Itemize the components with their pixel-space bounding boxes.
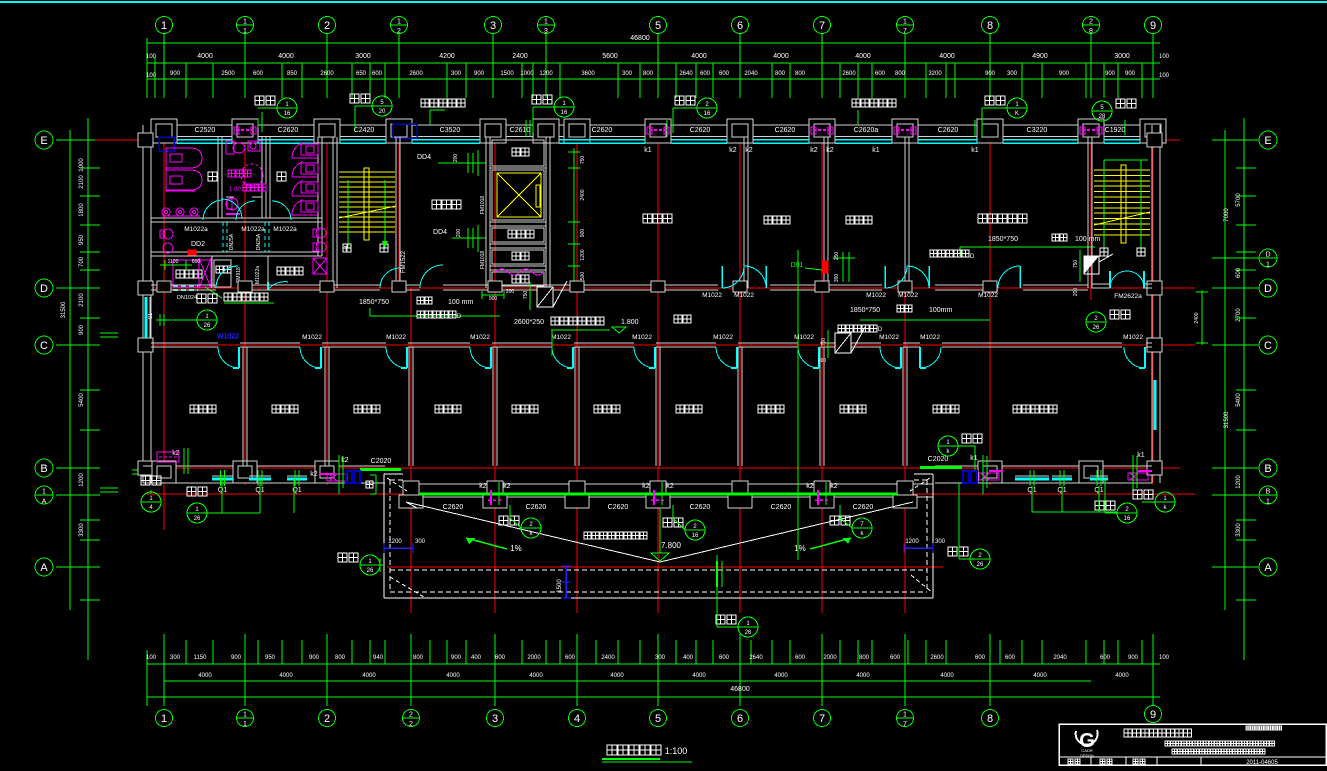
svg-text:7: 7 <box>903 721 907 728</box>
svg-text:k2: k2 <box>745 147 753 154</box>
svg-text:3300: 3300 <box>1236 523 1242 537</box>
svg-text:D: D <box>970 254 975 260</box>
svg-text:2400: 2400 <box>1194 312 1200 323</box>
svg-text:C1920: C1920 <box>1105 127 1126 134</box>
svg-text:M1022: M1022 <box>978 292 998 299</box>
svg-text:100: 100 <box>1159 54 1170 60</box>
svg-text:900: 900 <box>309 655 320 661</box>
svg-text:100mm: 100mm <box>929 307 953 314</box>
svg-text:900: 900 <box>170 71 181 77</box>
svg-text:4200: 4200 <box>439 53 455 60</box>
svg-text:k1: k1 <box>644 147 652 154</box>
svg-text:C2520: C2520 <box>195 127 216 134</box>
svg-text:DD4: DD4 <box>433 229 447 236</box>
svg-text:200: 200 <box>456 229 462 238</box>
svg-text:FM1018: FM1018 <box>480 196 486 215</box>
svg-text:1: 1 <box>243 28 247 35</box>
svg-text:C2620: C2620 <box>775 127 796 134</box>
svg-text:800: 800 <box>643 71 654 77</box>
svg-text:2600: 2600 <box>320 71 334 77</box>
svg-text:2600*250: 2600*250 <box>514 319 544 326</box>
svg-text:300: 300 <box>170 655 181 661</box>
svg-text:4000: 4000 <box>529 673 543 679</box>
svg-text:2: 2 <box>324 20 330 32</box>
svg-text:100: 100 <box>146 73 157 79</box>
svg-text:600: 600 <box>700 71 711 77</box>
svg-text:1100: 1100 <box>168 259 179 265</box>
svg-text:A: A <box>40 562 48 574</box>
svg-text:7: 7 <box>819 20 825 32</box>
svg-text:1000: 1000 <box>79 158 85 172</box>
svg-text:600: 600 <box>875 71 886 77</box>
svg-text:k1: k1 <box>872 147 880 154</box>
svg-text:C: C <box>40 340 48 352</box>
svg-text:16: 16 <box>284 111 291 117</box>
svg-text:4000: 4000 <box>856 673 870 679</box>
svg-text:800: 800 <box>895 71 906 77</box>
svg-text:k1: k1 <box>970 455 978 462</box>
svg-text:C2610: C2610 <box>510 127 531 134</box>
svg-text:950: 950 <box>79 234 85 245</box>
svg-text:FM918: FM918 <box>236 267 242 283</box>
svg-text:1200: 1200 <box>905 539 919 545</box>
svg-text:C2420: C2420 <box>354 127 375 134</box>
svg-text:600: 600 <box>890 655 901 661</box>
svg-text:300: 300 <box>451 71 462 77</box>
svg-text:2100: 2100 <box>79 175 85 189</box>
svg-text:1200: 1200 <box>79 473 85 487</box>
svg-text:B: B <box>1266 489 1271 496</box>
svg-text:1%: 1% <box>510 544 522 553</box>
svg-text:D: D <box>1265 252 1270 259</box>
svg-text:1200: 1200 <box>580 249 586 260</box>
svg-text:800: 800 <box>775 71 786 77</box>
svg-text:1: 1 <box>397 19 401 26</box>
svg-text:100: 100 <box>1159 73 1170 79</box>
svg-text:4000: 4000 <box>279 673 293 679</box>
svg-text:1.00: 1.00 <box>229 187 241 193</box>
svg-text:800: 800 <box>413 655 424 661</box>
svg-text:C2620: C2620 <box>771 504 792 511</box>
svg-text:800: 800 <box>335 655 346 661</box>
svg-text:4000: 4000 <box>610 673 624 679</box>
svg-text:k1: k1 <box>1137 452 1145 459</box>
svg-text:E: E <box>1264 135 1271 147</box>
svg-text:2: 2 <box>409 721 413 728</box>
svg-text:2000: 2000 <box>527 655 541 661</box>
svg-text:A: A <box>42 499 47 506</box>
svg-text:7: 7 <box>903 28 907 35</box>
svg-text:4: 4 <box>574 713 580 725</box>
svg-text:M1022: M1022 <box>470 334 490 341</box>
svg-text:1200: 1200 <box>388 539 402 545</box>
svg-text:1850*750: 1850*750 <box>850 307 880 314</box>
svg-text:C2620: C2620 <box>690 504 711 511</box>
svg-text:3: 3 <box>492 713 498 725</box>
svg-text:600: 600 <box>719 655 730 661</box>
svg-text:4000: 4000 <box>446 673 460 679</box>
svg-text:300: 300 <box>1007 71 1018 77</box>
svg-text:C3520: C3520 <box>440 127 461 134</box>
svg-text:46800: 46800 <box>730 686 750 693</box>
svg-text:C: C <box>1264 340 1272 352</box>
svg-text:k1: k1 <box>971 147 979 154</box>
svg-text:2600: 2600 <box>930 655 944 661</box>
svg-text:2640: 2640 <box>749 655 763 661</box>
svg-text:26: 26 <box>204 323 211 329</box>
svg-text:300: 300 <box>655 655 666 661</box>
svg-text:M1022: M1022 <box>713 334 733 341</box>
svg-text:9: 9 <box>1150 709 1156 721</box>
svg-text:2040: 2040 <box>1053 655 1067 661</box>
svg-text:4000: 4000 <box>362 673 376 679</box>
svg-text:1: 1 <box>161 20 167 32</box>
svg-text:5400: 5400 <box>79 393 85 407</box>
svg-text:3000: 3000 <box>355 53 371 60</box>
svg-text:600: 600 <box>1005 655 1016 661</box>
svg-text:2640: 2640 <box>679 71 693 77</box>
svg-text:600: 600 <box>565 655 576 661</box>
svg-text:6: 6 <box>737 713 743 725</box>
svg-text:100: 100 <box>146 54 157 60</box>
svg-text:1: 1 <box>1266 499 1270 506</box>
svg-text:2600: 2600 <box>842 71 856 77</box>
svg-text:900: 900 <box>580 229 586 238</box>
svg-text:2400: 2400 <box>601 655 615 661</box>
svg-text:1850*750: 1850*750 <box>359 299 389 306</box>
svg-text:1.800: 1.800 <box>621 319 639 326</box>
svg-text:5400: 5400 <box>1236 393 1242 407</box>
svg-text:2: 2 <box>409 712 413 719</box>
svg-text:1850*750: 1850*750 <box>988 236 1018 243</box>
svg-text:250: 250 <box>834 252 840 261</box>
svg-text:200: 200 <box>506 289 515 295</box>
svg-text:M1022: M1022 <box>879 334 899 341</box>
svg-text:C2020: C2020 <box>371 458 392 465</box>
svg-text:D: D <box>1264 283 1272 295</box>
svg-text:4000: 4000 <box>855 53 871 60</box>
svg-text:800: 800 <box>795 71 806 77</box>
svg-text:1500: 1500 <box>500 71 514 77</box>
svg-text:A: A <box>1264 562 1272 574</box>
svg-text:350: 350 <box>834 274 840 283</box>
svg-text:2: 2 <box>1089 19 1093 26</box>
svg-text:4000: 4000 <box>691 53 707 60</box>
svg-text:5: 5 <box>655 20 661 32</box>
svg-text:800: 800 <box>859 655 870 661</box>
svg-text:16: 16 <box>561 110 568 116</box>
svg-text:k2: k2 <box>729 147 737 154</box>
svg-text:Q1: Q1 <box>218 487 227 494</box>
svg-text:1: 1 <box>161 713 167 725</box>
svg-text:2100: 2100 <box>79 293 85 307</box>
svg-text:7: 7 <box>819 713 825 725</box>
svg-text:9: 9 <box>1150 20 1156 32</box>
svg-text:M1022a: M1022a <box>184 226 208 233</box>
svg-text:2700: 2700 <box>1236 308 1242 322</box>
svg-text:2: 2 <box>397 28 401 35</box>
svg-text:900: 900 <box>231 655 242 661</box>
svg-text:26: 26 <box>367 568 374 574</box>
svg-text:900: 900 <box>451 655 462 661</box>
svg-text:2040: 2040 <box>744 71 758 77</box>
svg-text:k2: k2 <box>310 471 318 478</box>
svg-text:4000: 4000 <box>692 673 706 679</box>
svg-text:300: 300 <box>622 71 633 77</box>
svg-text:k2: k2 <box>806 483 814 490</box>
svg-text:300: 300 <box>935 539 946 545</box>
svg-text:DN25A: DN25A <box>229 233 235 250</box>
svg-text:900: 900 <box>489 296 498 302</box>
svg-text:5700: 5700 <box>1236 193 1242 207</box>
svg-text:k2: k2 <box>642 483 650 490</box>
svg-text:8: 8 <box>1089 28 1093 35</box>
svg-text:7.800: 7.800 <box>661 541 682 550</box>
svg-text:B: B <box>40 463 47 475</box>
svg-text:2000: 2000 <box>823 655 837 661</box>
svg-text:900: 900 <box>1059 71 1070 77</box>
svg-text:M1022: M1022 <box>734 292 754 299</box>
svg-text:31500: 31500 <box>1224 411 1230 428</box>
svg-text:900: 900 <box>474 71 485 77</box>
svg-text:600: 600 <box>192 259 201 265</box>
svg-text:8: 8 <box>987 20 993 32</box>
svg-text:C2620: C2620 <box>938 127 959 134</box>
svg-text:950: 950 <box>265 655 276 661</box>
svg-text:C2620: C2620 <box>526 504 547 511</box>
svg-text:W1022: W1022 <box>218 334 239 341</box>
svg-text:M1022: M1022 <box>898 292 918 299</box>
svg-text:CADR: CADR <box>1081 748 1092 753</box>
svg-text:3: 3 <box>544 28 548 35</box>
svg-text:M1022: M1022 <box>551 334 571 341</box>
svg-text:600: 600 <box>1100 655 1111 661</box>
svg-text:4000: 4000 <box>1033 673 1047 679</box>
svg-text:M1022: M1022 <box>866 292 886 299</box>
svg-text:28: 28 <box>1099 114 1106 120</box>
svg-text:3300: 3300 <box>79 523 85 537</box>
svg-text:M1022a: M1022a <box>273 226 297 233</box>
svg-text:650: 650 <box>356 71 367 77</box>
svg-text:200: 200 <box>453 154 459 163</box>
svg-text:FM2622a: FM2622a <box>1114 293 1142 300</box>
svg-text:B: B <box>1264 463 1271 475</box>
svg-text:750: 750 <box>523 291 529 300</box>
svg-text:200: 200 <box>818 358 827 364</box>
svg-text:DN25A: DN25A <box>256 233 262 250</box>
svg-text:2: 2 <box>324 713 330 725</box>
svg-text:100: 100 <box>1159 655 1170 661</box>
svg-text:900: 900 <box>79 324 85 335</box>
svg-text:k2: k2 <box>666 483 674 490</box>
svg-text:C2020: C2020 <box>928 456 949 463</box>
svg-text:E: E <box>40 135 47 147</box>
svg-text:750: 750 <box>1073 260 1079 269</box>
svg-text:1: 1 <box>544 19 548 26</box>
svg-text:400: 400 <box>683 655 694 661</box>
svg-text:400: 400 <box>471 655 482 661</box>
svg-text:D: D <box>40 283 48 295</box>
svg-text:1200: 1200 <box>539 71 553 77</box>
svg-text:4000: 4000 <box>774 673 788 679</box>
svg-text:4000: 4000 <box>940 673 954 679</box>
svg-text:S1: S1 <box>148 313 154 319</box>
svg-text:1:100: 1:100 <box>665 746 688 756</box>
svg-text:26: 26 <box>194 516 201 522</box>
svg-text:DN1024: DN1024 <box>177 295 197 301</box>
svg-text:850: 850 <box>287 71 298 77</box>
svg-text:600: 600 <box>719 71 730 77</box>
svg-text:k2: k2 <box>830 483 838 490</box>
svg-text:4000: 4000 <box>197 53 213 60</box>
svg-text:26: 26 <box>745 630 752 636</box>
svg-text:3000: 3000 <box>1114 53 1130 60</box>
svg-text:600: 600 <box>975 655 986 661</box>
svg-text:k2: k2 <box>826 147 834 154</box>
svg-text:4000: 4000 <box>773 53 789 60</box>
svg-text:16: 16 <box>704 111 711 117</box>
svg-text:600: 600 <box>795 655 806 661</box>
svg-text:750: 750 <box>821 338 827 347</box>
svg-text:4900: 4900 <box>1032 53 1048 60</box>
svg-text:16: 16 <box>1124 516 1131 522</box>
svg-text:C2620: C2620 <box>592 127 613 134</box>
svg-text:1: 1 <box>903 19 907 26</box>
svg-text:900: 900 <box>985 71 996 77</box>
svg-text:4000: 4000 <box>278 53 294 60</box>
svg-text:k2: k2 <box>503 483 511 490</box>
svg-text:1500: 1500 <box>557 579 563 593</box>
svg-text:8: 8 <box>987 713 993 725</box>
svg-text:5: 5 <box>655 713 661 725</box>
svg-text:1800: 1800 <box>79 203 85 217</box>
svg-text:5600: 5600 <box>602 53 618 60</box>
svg-text:900: 900 <box>1128 655 1139 661</box>
svg-text:1: 1 <box>42 489 46 496</box>
svg-text:M1022a: M1022a <box>255 266 261 284</box>
svg-text:3: 3 <box>490 20 496 32</box>
svg-text:2011-04605: 2011-04605 <box>1246 760 1278 766</box>
svg-text:1%: 1% <box>794 544 806 553</box>
svg-text:2600: 2600 <box>409 71 423 77</box>
svg-text:M1022: M1022 <box>632 334 652 341</box>
svg-text:4000: 4000 <box>1115 673 1129 679</box>
svg-text:M1022: M1022 <box>702 292 722 299</box>
svg-text:100: 100 <box>146 655 157 661</box>
svg-text:940: 940 <box>373 655 384 661</box>
svg-text:200: 200 <box>1073 288 1079 297</box>
svg-text:k2: k2 <box>341 457 349 464</box>
svg-text:750: 750 <box>580 156 586 165</box>
svg-text:C2620: C2620 <box>443 504 464 511</box>
svg-text:DESIGN: DESIGN <box>1080 754 1094 758</box>
svg-text:4000: 4000 <box>198 673 212 679</box>
svg-text:100 mm: 100 mm <box>448 299 473 306</box>
svg-text:k2: k2 <box>479 483 487 490</box>
svg-text:900: 900 <box>1125 71 1136 77</box>
svg-text:1150: 1150 <box>194 655 208 661</box>
svg-text:M1022: M1022 <box>1123 334 1143 341</box>
svg-text:600: 600 <box>1236 267 1242 278</box>
svg-text:26: 26 <box>977 562 984 568</box>
svg-text:M1022: M1022 <box>386 334 406 341</box>
svg-text:300: 300 <box>415 539 426 545</box>
svg-text:3600: 3600 <box>581 71 595 77</box>
svg-text:D01: D01 <box>791 262 804 269</box>
svg-text:3200: 3200 <box>928 71 942 77</box>
svg-text:1: 1 <box>243 721 247 728</box>
svg-text:2400: 2400 <box>580 189 586 200</box>
svg-text:1: 1 <box>903 712 907 719</box>
svg-text:M1022: M1022 <box>302 334 322 341</box>
svg-text:4000: 4000 <box>939 53 955 60</box>
svg-text:C2620: C2620 <box>690 127 711 134</box>
svg-text:DD4: DD4 <box>417 154 431 161</box>
svg-text:31500: 31500 <box>61 301 67 318</box>
svg-text:16: 16 <box>692 533 699 539</box>
svg-text:C2620: C2620 <box>853 504 874 511</box>
svg-text:1200: 1200 <box>1236 475 1242 489</box>
svg-text:C2620: C2620 <box>278 127 299 134</box>
svg-text:k2: k2 <box>810 147 818 154</box>
svg-text:FM1018: FM1018 <box>480 251 486 270</box>
svg-text:1: 1 <box>1266 262 1270 269</box>
svg-text:C2620a: C2620a <box>854 127 879 134</box>
svg-text:C2620: C2620 <box>608 504 629 511</box>
svg-text:26: 26 <box>1093 325 1100 331</box>
svg-text:1: 1 <box>243 712 247 719</box>
svg-text:46800: 46800 <box>630 35 650 42</box>
svg-text:M1022: M1022 <box>794 334 814 341</box>
svg-text:M1022: M1022 <box>920 334 940 341</box>
svg-text:D: D <box>457 314 462 320</box>
svg-text:2400: 2400 <box>512 53 528 60</box>
svg-text:600: 600 <box>253 71 264 77</box>
svg-text:2500: 2500 <box>221 71 235 77</box>
svg-text:1: 1 <box>243 19 247 26</box>
svg-text:900: 900 <box>1105 71 1116 77</box>
svg-text:6: 6 <box>737 20 743 32</box>
svg-text:7000: 7000 <box>1224 208 1230 222</box>
svg-text:500: 500 <box>580 272 586 281</box>
svg-text:FM1522: FM1522 <box>401 250 407 273</box>
svg-text:DD2: DD2 <box>191 241 205 248</box>
svg-text:M1022a: M1022a <box>241 226 265 233</box>
svg-text:600: 600 <box>495 655 506 661</box>
svg-text:1000: 1000 <box>520 71 534 77</box>
svg-text:C3220: C3220 <box>1027 127 1048 134</box>
svg-text:700: 700 <box>79 256 85 267</box>
svg-text:D: D <box>878 327 883 333</box>
svg-text:600: 600 <box>372 71 383 77</box>
svg-text:K: K <box>1015 111 1019 117</box>
svg-text:20: 20 <box>379 109 386 115</box>
